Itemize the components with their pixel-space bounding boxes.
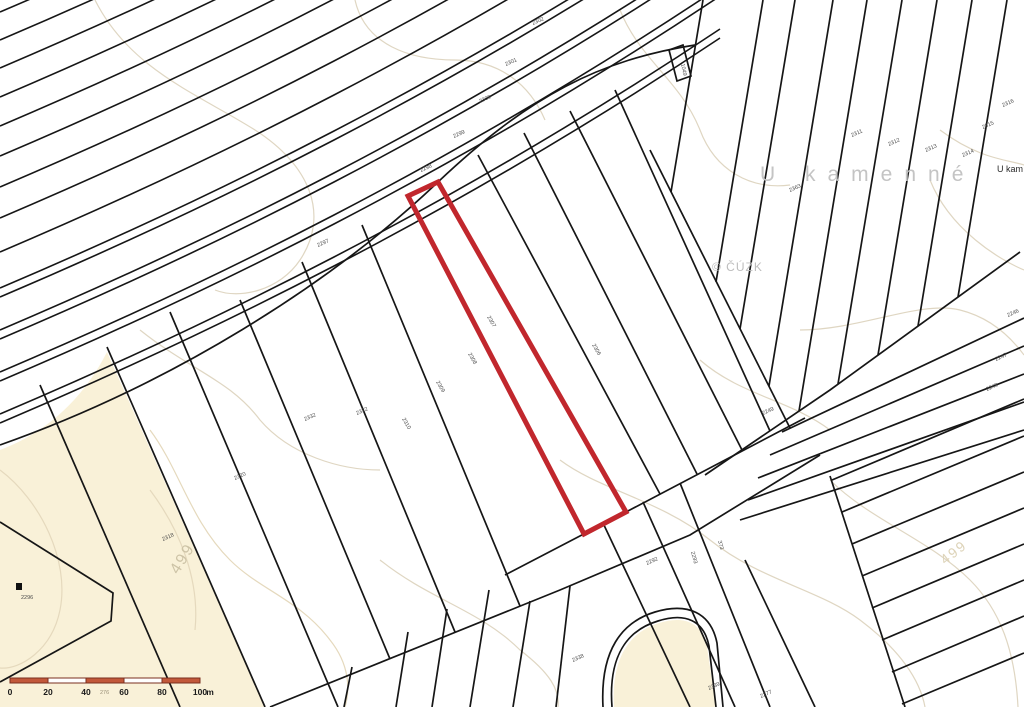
parcel-number-label: 2313	[924, 143, 938, 153]
building-symbol	[16, 583, 22, 590]
scale-bar-segment	[10, 678, 48, 683]
contour-elevation-label: 499	[937, 537, 970, 568]
parcel-number-label: 2293	[689, 551, 698, 564]
parcel-number-label: 2312	[887, 137, 901, 147]
parcel-number-label: 2310	[400, 417, 411, 431]
parcel-number-label: 2332	[303, 412, 317, 422]
parcel-number-label: 2296	[21, 595, 33, 601]
parcel-number-label: 2320	[233, 471, 247, 481]
cadastral-map-canvas[interactable]: U kamenné U kam © ČÚZK 499499 2302230123…	[0, 0, 1024, 707]
parcel-number-label: 2248	[985, 382, 999, 392]
copyright-watermark: © ČÚZK	[712, 259, 763, 274]
parcel-number-label: 2247	[994, 352, 1008, 362]
parcel-number-label: 2299	[452, 129, 466, 139]
parcel-number-label: 2249	[761, 406, 775, 416]
place-name-label: U kamenné	[760, 163, 975, 186]
parcel-number-label: 2297	[316, 238, 330, 248]
scale-bar-segment	[48, 678, 86, 683]
scale-bar-segment	[162, 678, 200, 683]
scale-bar-tick-label: 60	[119, 687, 129, 697]
map-viewport[interactable]: U kamenné U kam © ČÚZK 499499 2302230123…	[0, 0, 1024, 707]
parcel-number-label: 2301	[504, 57, 518, 67]
scale-bar-tick-label: 100	[193, 687, 207, 697]
parcel-number-label: 2311	[850, 129, 863, 139]
parcel-number-label: 2338	[571, 653, 585, 663]
landuse-tint-layer	[0, 352, 716, 707]
parcel-number-label: 2300	[478, 94, 492, 104]
scale-bar-segment	[124, 678, 162, 683]
highlighted-parcel-outline[interactable]	[408, 182, 626, 534]
parcel-number-label: 2315	[981, 120, 995, 130]
parcel-number-label: 276	[100, 690, 109, 696]
parcel-number-label: 1049	[679, 63, 687, 76]
place-name-label-partial: U kam	[997, 164, 1023, 174]
scale-bar-unit-label: m	[206, 687, 214, 697]
beige-area-bottom-center	[614, 620, 716, 707]
parcel-number-label: 2316	[1001, 98, 1015, 108]
scale-bar-segment	[86, 678, 124, 683]
parcel-number-label: 2314	[961, 148, 975, 158]
parcel-number-label: 2246	[1006, 308, 1020, 318]
scale-bar-tick-label: 40	[81, 687, 91, 697]
parcel-number-label: 2322	[355, 406, 369, 416]
scale-bar-tick-label: 80	[157, 687, 167, 697]
parcel-number-label: 2292	[645, 556, 659, 566]
parcel-number-label: 2307	[485, 315, 496, 329]
parcel-number-label: 2306	[590, 343, 601, 357]
parcel-number-label: 2309	[434, 380, 445, 394]
parcel-number-label: 2308	[466, 352, 477, 366]
scale-bar-tick-label: 20	[43, 687, 53, 697]
parcel-number-label: 373	[716, 540, 724, 550]
parcel-number-label: 2302	[531, 16, 545, 26]
scale-bar-tick-label: 0	[8, 687, 13, 697]
